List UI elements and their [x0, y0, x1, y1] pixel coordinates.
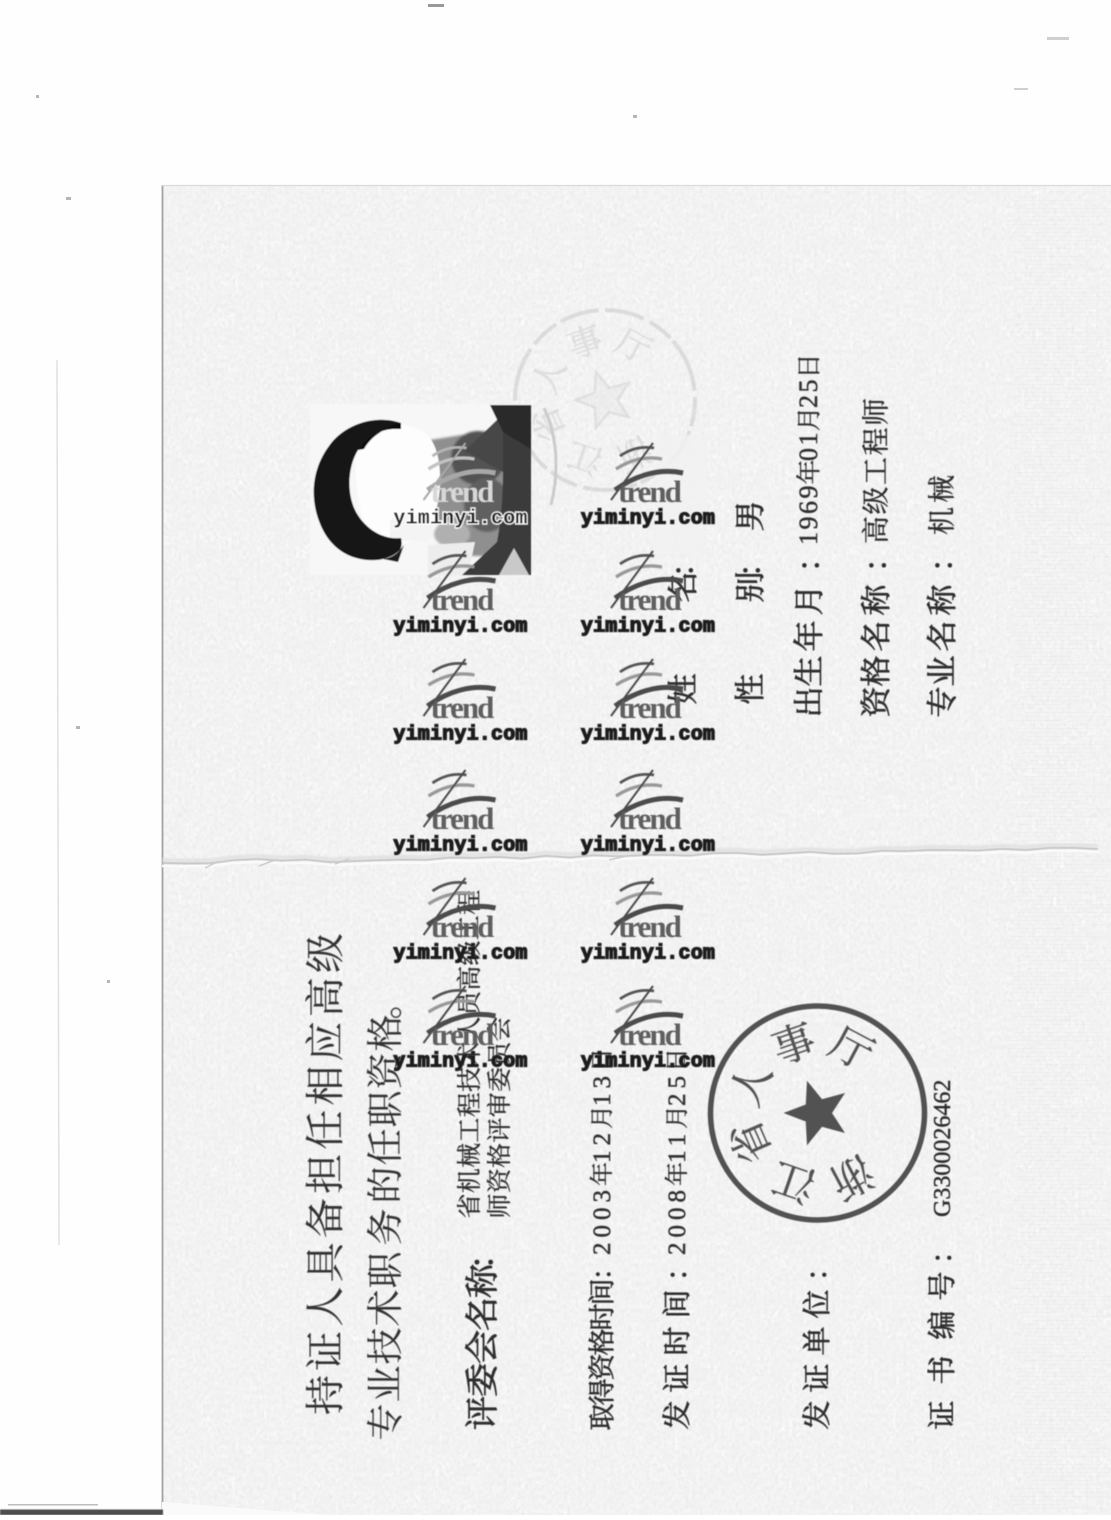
- svg-text:trend: trend: [431, 1017, 495, 1052]
- svg-text:25: 25: [794, 377, 823, 408]
- svg-text:yiminyi.com: yiminyi.com: [393, 1051, 527, 1074]
- svg-text:25: 25: [664, 1071, 691, 1106]
- svg-text:trend: trend: [618, 582, 682, 617]
- svg-text:yiminyi.com: yiminyi.com: [393, 724, 527, 747]
- svg-text:yiminyi.com: yiminyi.com: [393, 943, 527, 966]
- svg-text:13: 13: [589, 1071, 616, 1106]
- svg-text:trend: trend: [431, 801, 495, 836]
- svg-text:yiminyi.com: yiminyi.com: [581, 835, 715, 858]
- svg-text:yiminyi.com: yiminyi.com: [581, 616, 715, 639]
- svg-text:trend: trend: [431, 474, 495, 509]
- svg-text:trend: trend: [618, 690, 682, 725]
- svg-text:trend: trend: [618, 801, 682, 836]
- svg-text:G3300026462: G3300026462: [930, 1080, 956, 1217]
- svg-text:yiminyi.com: yiminyi.com: [581, 724, 715, 747]
- svg-text:2008: 2008: [664, 1185, 691, 1255]
- svg-text:trend: trend: [618, 1017, 682, 1052]
- svg-text:01: 01: [794, 430, 823, 461]
- svg-text:yiminyi.com: yiminyi.com: [581, 943, 715, 966]
- svg-text:yiminyi.com: yiminyi.com: [393, 508, 527, 531]
- svg-text:yiminyi.com: yiminyi.com: [581, 1051, 715, 1074]
- svg-text:12: 12: [589, 1128, 616, 1163]
- svg-text:yiminyi.com: yiminyi.com: [393, 616, 527, 639]
- svg-text:trend: trend: [431, 690, 495, 725]
- svg-text:trend: trend: [431, 909, 495, 944]
- svg-text:yiminyi.com: yiminyi.com: [581, 508, 715, 531]
- svg-text:trend: trend: [431, 582, 495, 617]
- svg-text:trend: trend: [618, 909, 682, 944]
- svg-text:trend: trend: [618, 474, 682, 509]
- svg-text:yiminyi.com: yiminyi.com: [393, 835, 527, 858]
- svg-text:11: 11: [664, 1129, 691, 1163]
- svg-text:1969: 1969: [794, 483, 823, 545]
- svg-text:2003: 2003: [589, 1185, 616, 1255]
